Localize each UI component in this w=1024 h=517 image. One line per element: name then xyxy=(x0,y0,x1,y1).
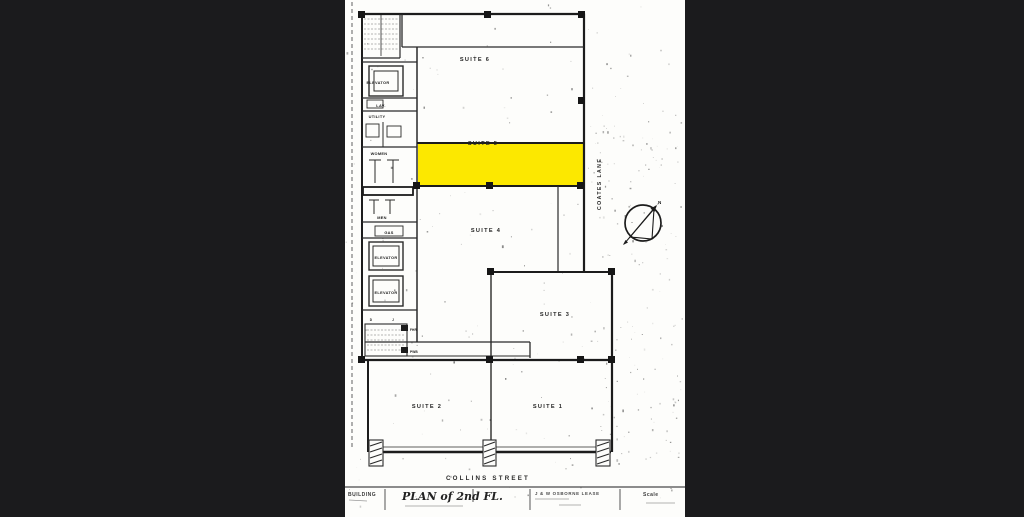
coates-lane-label: COATES LANE xyxy=(597,158,603,210)
stair-bottom-icon: D J FHR PWB xyxy=(365,318,418,356)
floor-plan-drawing: ELEVATOR LAV. UTILITY xyxy=(345,0,685,517)
service-core: ELEVATOR LAV. UTILITY xyxy=(362,14,418,356)
suite-4-label: SUITE 4 xyxy=(471,228,501,234)
suite-1-label: SUITE 1 xyxy=(533,404,563,410)
lav-label: LAV. xyxy=(376,103,385,108)
plan-title: PLAN of 2nd FL. xyxy=(401,490,503,503)
women-label: WOMEN xyxy=(371,151,388,156)
suite-5-label: SUITE 5 xyxy=(468,141,498,147)
scanned-floor-plan-viewer: ELEVATOR LAV. UTILITY xyxy=(0,0,1024,517)
scale-field-label: Scale xyxy=(643,492,659,498)
fhr-label: FHR xyxy=(410,328,417,332)
women-room: WOMEN xyxy=(363,151,413,195)
stair-top-icon xyxy=(362,14,400,58)
collins-street-label: COLLINS STREET xyxy=(446,475,530,482)
suite-5-highlight xyxy=(418,144,583,186)
utility-label: UTILITY xyxy=(369,114,386,119)
door-d-label: D xyxy=(370,318,373,322)
men-label: MEN xyxy=(377,215,387,220)
elevator-top-room: ELEVATOR xyxy=(362,62,417,98)
elevator-low-room: ELEVATOR xyxy=(362,276,417,310)
elevator-low-label: ELEVATOR xyxy=(375,290,398,295)
pwb-label: PWB xyxy=(410,350,418,354)
suite-6-label: SUITE 6 xyxy=(460,57,490,63)
suite-2-label: SUITE 2 xyxy=(412,404,442,410)
client-field: J & W OSBORNE LEASE xyxy=(535,491,600,496)
men-room: MEN xyxy=(362,200,417,222)
door-j-label: J xyxy=(392,318,394,322)
building-field-label: BUILDING xyxy=(348,492,376,498)
floor-plan-page: ELEVATOR LAV. UTILITY xyxy=(345,0,685,517)
gas-room: GAS xyxy=(362,226,417,238)
right-letterbox-bar xyxy=(685,0,1024,517)
compass-n-label: N xyxy=(658,200,662,205)
suite-3-label: SUITE 3 xyxy=(540,312,570,318)
lav-room: LAV. xyxy=(362,100,417,111)
elevator-top-label: ELEVATOR xyxy=(367,80,390,85)
elevator-mid-label: ELEVATOR xyxy=(375,255,398,260)
elevator-mid-room: ELEVATOR xyxy=(369,242,403,270)
title-block: BUILDING PLAN of 2nd FL. J & W OSBORNE L… xyxy=(345,487,685,510)
left-letterbox-bar xyxy=(0,0,345,517)
utility-room: UTILITY xyxy=(362,114,417,147)
gas-label: GAS xyxy=(384,230,393,235)
